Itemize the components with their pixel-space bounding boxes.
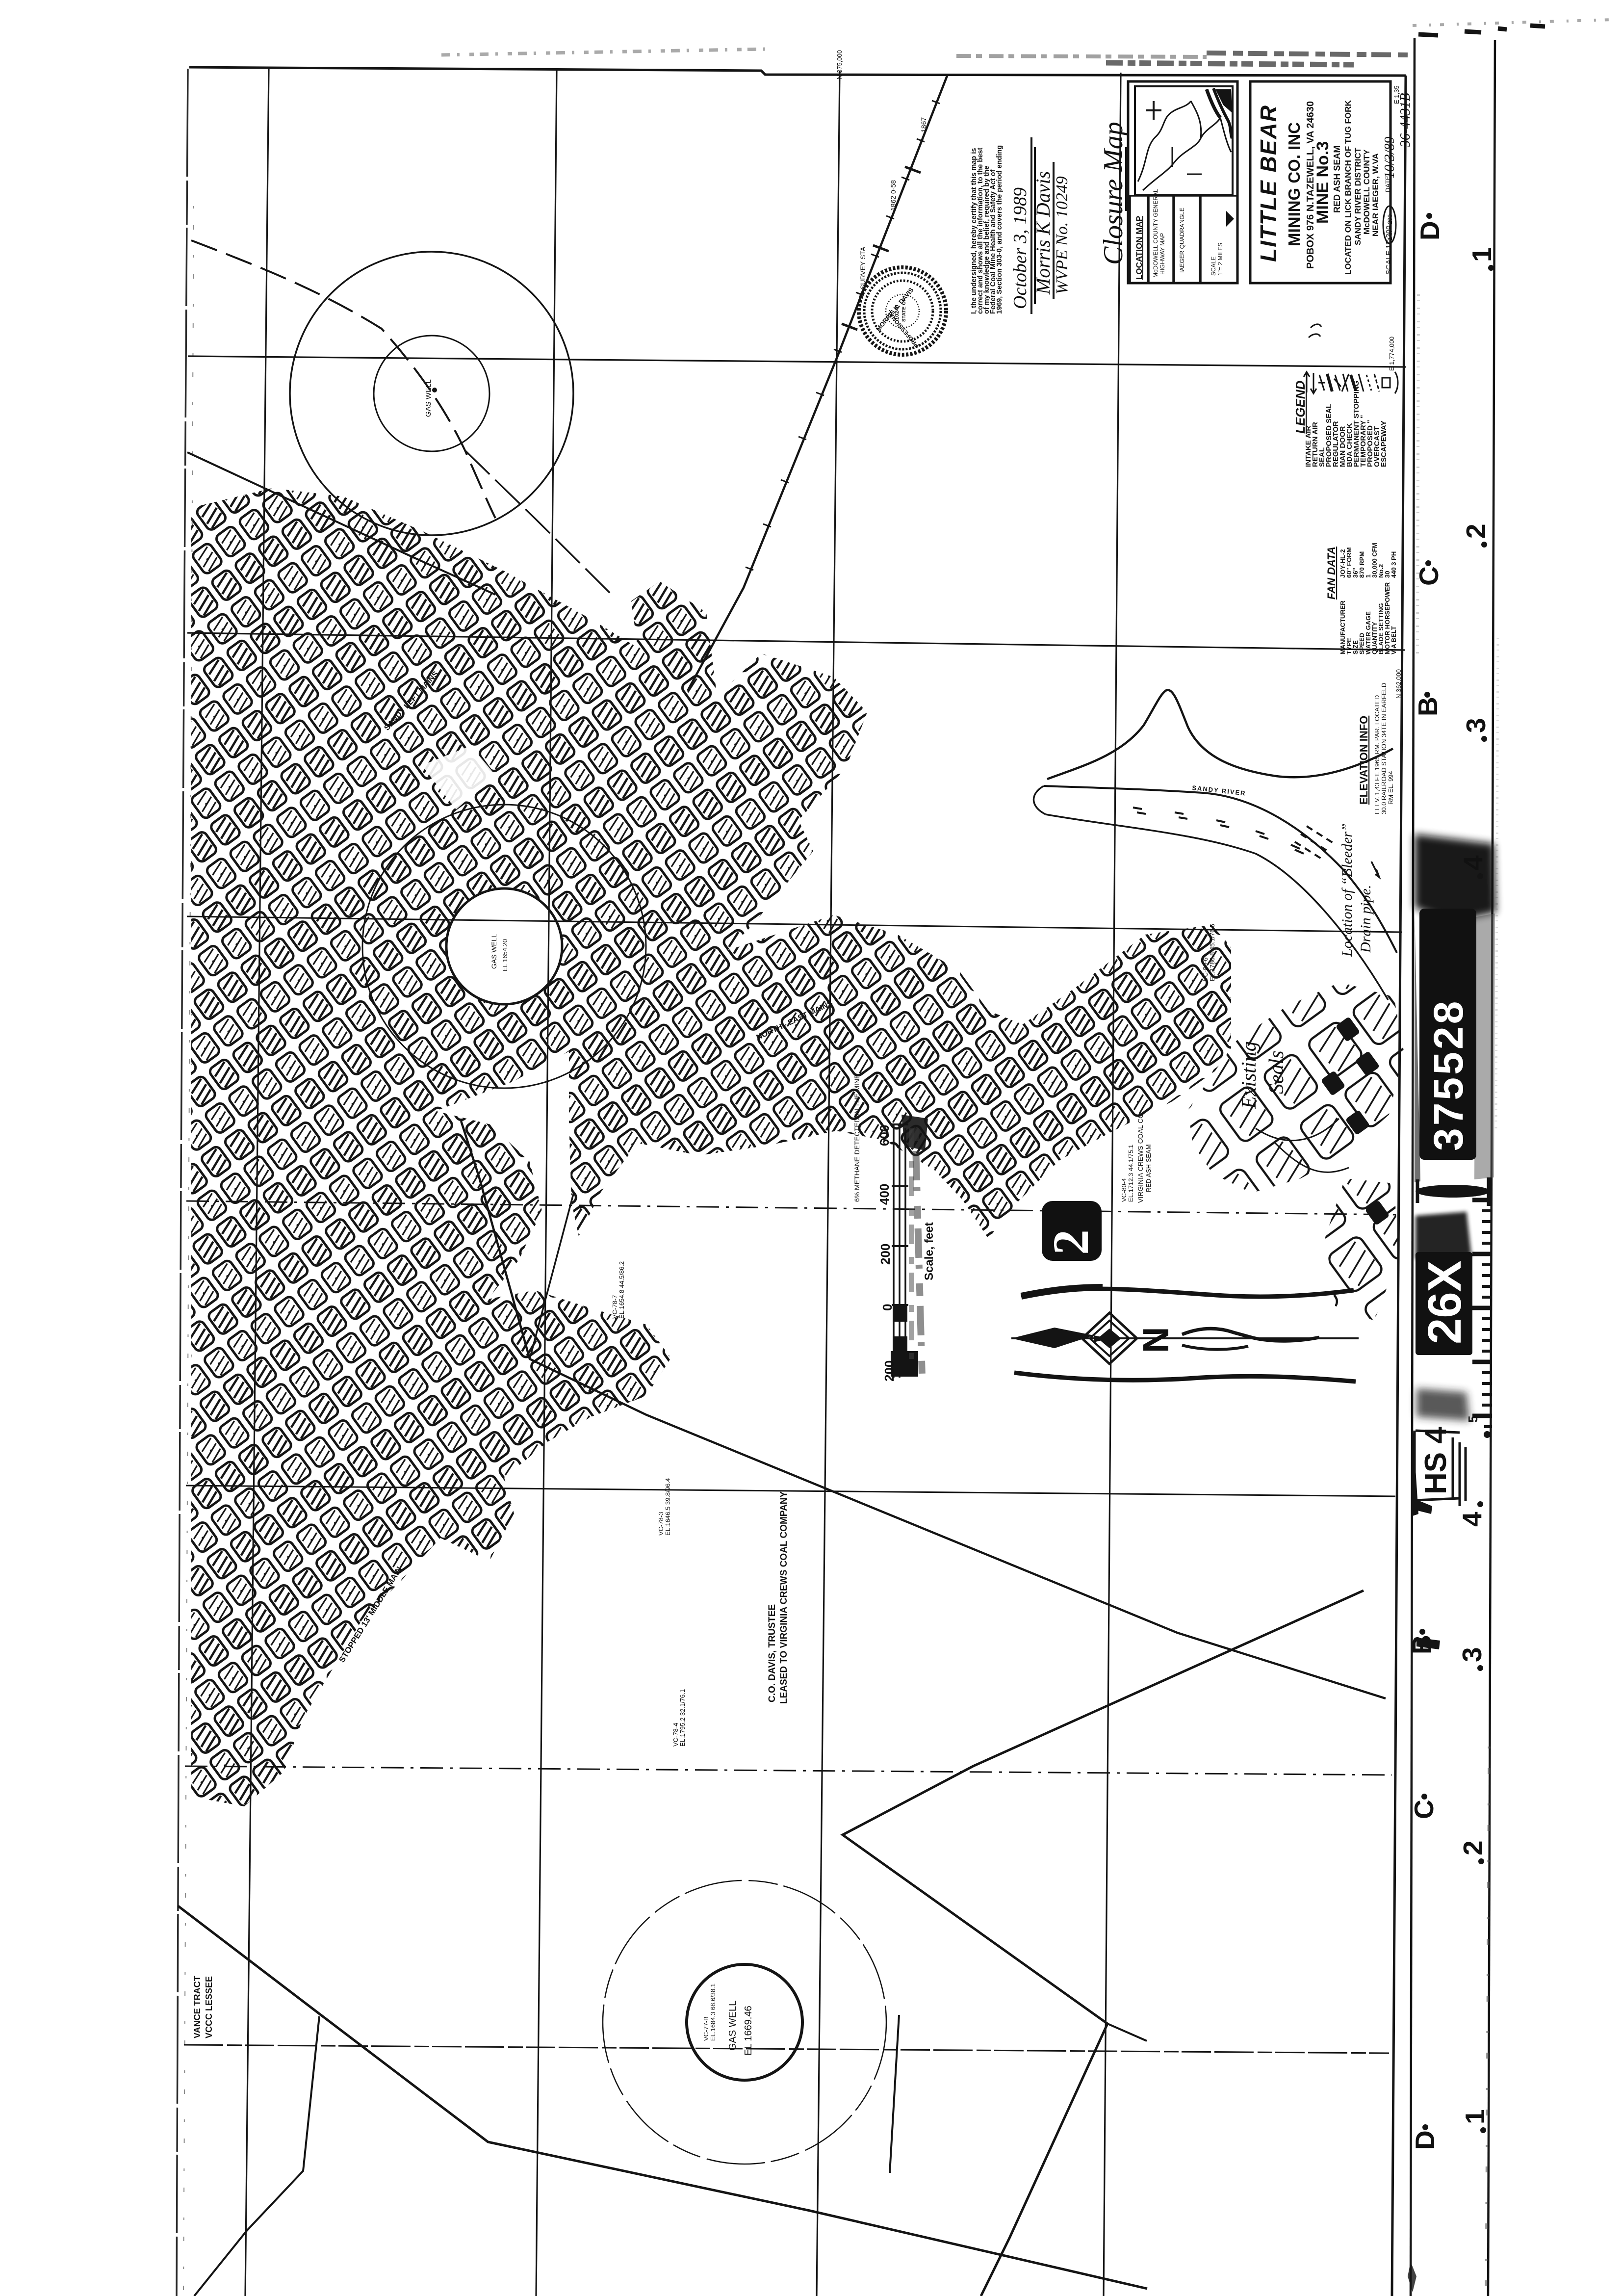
svg-text:375528: 375528 (1425, 999, 1471, 1151)
svg-text:26X: 26X (1418, 1260, 1471, 1344)
svg-text:HS 4: HS 4 (1419, 1427, 1453, 1494)
svg-text:E 1,774,000: E 1,774,000 (1388, 337, 1395, 371)
svg-text:VIRGINIA CREWS COAL CO: VIRGINIA CREWS COAL CO (1136, 1113, 1144, 1203)
svg-text:1"= 2 MILES: 1"= 2 MILES (1217, 243, 1224, 276)
svg-text:N: N (1135, 1327, 1176, 1353)
svg-text:N 362,000: N 362,000 (1395, 669, 1402, 699)
svg-text:MINING CO. INC: MINING CO. INC (1285, 122, 1303, 246)
svg-text:C.O. DAVIS, TRUSTEE: C.O. DAVIS, TRUSTEE (767, 1604, 777, 1702)
svg-text:D: D (1415, 221, 1445, 240)
svg-text:1867: 1867 (920, 117, 927, 132)
svg-text:GAS WELL: GAS WELL (490, 934, 498, 969)
svg-text:6% METHANE DETECTED IN THE MIN: 6% METHANE DETECTED IN THE MINE (853, 1074, 861, 1202)
svg-text:RED ASH SEAM: RED ASH SEAM (1332, 146, 1342, 213)
svg-text:Existing: Existing (1238, 1041, 1261, 1109)
svg-text:EL.1795.2 32.1/76.1: EL.1795.2 32.1/76.1 (679, 1689, 686, 1747)
svg-text:4: 4 (1458, 855, 1488, 870)
svg-text:4: 4 (1457, 1512, 1487, 1527)
svg-text:ELEV. 1,43 FT. 1965 RM. PAR. L: ELEV. 1,43 FT. 1965 RM. PAR. LOCATED (1373, 695, 1381, 814)
svg-text:V-A BELT: V-A BELT (1390, 626, 1397, 654)
svg-text:WVPE No. 10249: WVPE No. 10249 (1053, 176, 1071, 294)
svg-text:400: 400 (877, 1184, 892, 1205)
svg-text:C: C (1414, 566, 1444, 586)
svg-text:VC-77-B: VC-77-B (702, 2016, 710, 2041)
svg-text:McDOWELL COUNTY GENERAL: McDOWELL COUNTY GENERAL (1152, 189, 1159, 278)
svg-text:McDOWELL COUNTY: McDOWELL COUNTY (1362, 149, 1371, 235)
svg-text:10/3/89: 10/3/89 (1382, 136, 1397, 179)
svg-text:Location of “Bleeder”: Location of “Bleeder” (1339, 823, 1355, 957)
svg-text:1969, Section 303-0, and cover: 1969, Section 303-0, and covers the peri… (996, 145, 1004, 314)
svg-text:Morris K Davis: Morris K Davis (1032, 171, 1054, 295)
svg-text:3: 3 (1457, 1647, 1487, 1662)
svg-text:VC-80-6: VC-80-6 (1202, 958, 1209, 981)
svg-text:EL.1654.8 44.5/86.2: EL.1654.8 44.5/86.2 (618, 1261, 625, 1319)
svg-text:ELEVATION INFO: ELEVATION INFO (1358, 716, 1370, 805)
svg-text:VC-80-4: VC-80-4 (1120, 1178, 1128, 1202)
svg-text:SANDY RIVER DISTRICT: SANDY RIVER DISTRICT (1353, 147, 1363, 245)
svg-text:2: 2 (1461, 523, 1491, 539)
svg-text:LEASED TO VIRGINIA CREWS COAL: LEASED TO VIRGINIA CREWS COAL COMPANY (779, 1491, 789, 1704)
svg-text:SCALE: SCALE (1210, 257, 1217, 276)
svg-text:EL 1669.46: EL 1669.46 (743, 2006, 754, 2056)
svg-text:RM EL. 994: RM EL. 994 (1387, 771, 1394, 805)
svg-text:Drain pipe.: Drain pipe. (1358, 885, 1374, 953)
svg-text:October 3, 1989: October 3, 1989 (1010, 187, 1030, 309)
svg-text:EL.1712.3 44.1/75.1: EL.1712.3 44.1/75.1 (1127, 1145, 1134, 1202)
svg-text:200: 200 (882, 1360, 897, 1382)
svg-text:D: D (1410, 2130, 1440, 2150)
svg-text:LOCATED ON LICK BRANCH OF TUG: LOCATED ON LICK BRANCH OF TUG FORK (1343, 100, 1353, 275)
svg-text:Scale, feet: Scale, feet (923, 1222, 936, 1280)
svg-text:1: 1 (1460, 2109, 1490, 2124)
svg-text:EL 1654.20: EL 1654.20 (501, 939, 509, 971)
svg-text:VC-78-4: VC-78-4 (672, 1723, 679, 1747)
svg-text:C: C (1409, 1800, 1439, 1819)
svg-text:600: 600 (877, 1125, 892, 1146)
svg-text:ESCAPEWAY: ESCAPEWAY (1380, 421, 1388, 467)
svg-text:N 375,000: N 375,000 (836, 50, 843, 79)
svg-text:30.0 RAILROAD STATION 34TE: 30.0 RAILROAD STATION 34TE IN EARFELD (1380, 683, 1388, 814)
svg-text:FAN DATA: FAN DATA (1325, 547, 1338, 600)
svg-text:MINE No.3: MINE No.3 (1313, 141, 1332, 224)
svg-text:NEAR IAEGER, W.VA: NEAR IAEGER, W.VA (1371, 153, 1380, 236)
svg-text:1: 1 (1467, 247, 1497, 262)
svg-text:Seals: Seals (1265, 1050, 1288, 1094)
svg-text:VCCC LESSEE: VCCC LESSEE (204, 1976, 214, 2038)
svg-text:B: B (1413, 697, 1443, 716)
svg-text:E 1,35: E 1,35 (1393, 85, 1400, 104)
svg-text:RED ASH SEAM: RED ASH SEAM (1145, 1144, 1152, 1192)
svg-text:3: 3 (1461, 718, 1491, 733)
svg-text:HIGHWAY MAP: HIGHWAY MAP (1159, 233, 1166, 275)
svg-text:LOCATION MAP: LOCATION MAP (1134, 216, 1144, 280)
svg-text:EL.1684.3 68.6/38.1: EL.1684.3 68.6/38.1 (709, 1983, 717, 2041)
svg-text:200: 200 (878, 1244, 893, 1265)
svg-text:440 3 PH: 440 3 PH (1390, 551, 1397, 578)
svg-text:870 RPM: 870 RPM (1358, 551, 1365, 578)
svg-text:VC-78-3: VC-78-3 (657, 1512, 665, 1536)
svg-text:LITTLE BEAR: LITTLE BEAR (1256, 104, 1281, 262)
svg-text:EL.1786.8 45.1/76.5: EL.1786.8 45.1/76.5 (1209, 924, 1216, 981)
svg-text:SURVEY STA: SURVEY STA (859, 246, 867, 289)
svg-text:VANCE TRACT: VANCE TRACT (192, 1976, 202, 2038)
svg-text:1 in = 200: 1 in = 200 (1387, 214, 1393, 240)
svg-text:LEGEND: LEGEND (1293, 380, 1308, 434)
svg-text:1862 0-58: 1862 0-58 (889, 180, 897, 211)
svg-text:EL.1646.5 39.8/96.4: EL.1646.5 39.8/96.4 (664, 1478, 671, 1536)
svg-text:GAS WELL: GAS WELL (727, 2001, 738, 2051)
svg-text:2: 2 (1043, 1229, 1099, 1255)
svg-text:2: 2 (1458, 1840, 1488, 1855)
svg-text:IAEGER QUADRANGLE: IAEGER QUADRANGLE (1179, 208, 1185, 273)
svg-text:0: 0 (880, 1304, 895, 1311)
svg-text:Closure Map: Closure Map (1098, 122, 1129, 265)
svg-text:VC-78-7: VC-78-7 (611, 1295, 618, 1319)
